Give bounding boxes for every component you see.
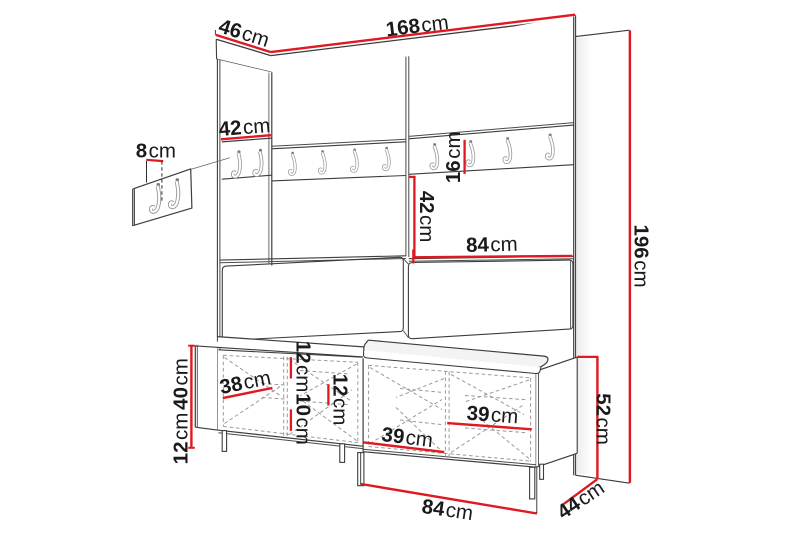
svg-text:40cm: 40cm xyxy=(170,358,193,410)
svg-text:84cm: 84cm xyxy=(466,233,518,257)
svg-text:8cm: 8cm xyxy=(136,140,176,163)
svg-text:39cm: 39cm xyxy=(466,402,519,429)
svg-text:196cm: 196cm xyxy=(629,224,652,287)
svg-text:12cm: 12cm xyxy=(170,413,193,465)
svg-text:42cm: 42cm xyxy=(218,114,271,141)
svg-text:16cm: 16cm xyxy=(442,131,465,183)
svg-text:12cm: 12cm xyxy=(291,341,314,393)
svg-text:42cm: 42cm xyxy=(415,191,438,243)
svg-text:12cm: 12cm xyxy=(328,374,351,426)
svg-text:10cm: 10cm xyxy=(291,393,314,445)
svg-text:52cm: 52cm xyxy=(591,393,614,445)
